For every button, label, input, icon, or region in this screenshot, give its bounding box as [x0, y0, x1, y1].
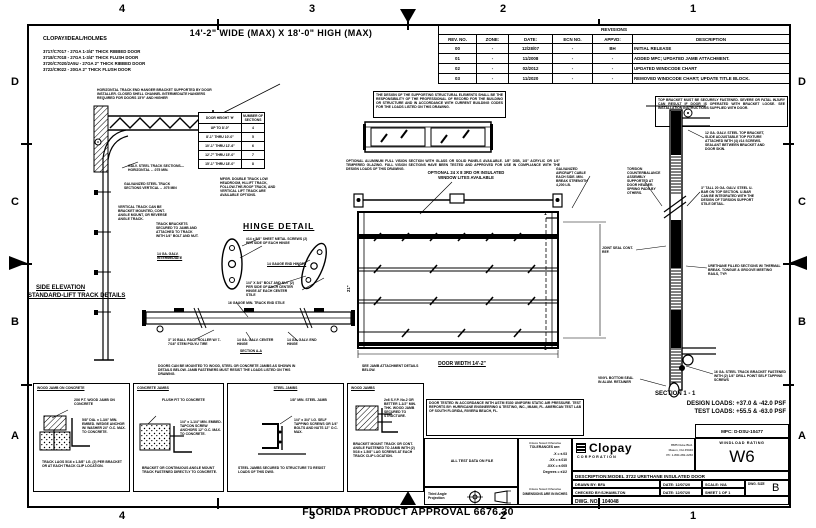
leader-lines-overlay — [0, 0, 816, 528]
drawing-sheet: 4 3 2 1 4 3 2 1 D C B A D C B A 14'-2" W… — [0, 0, 816, 528]
